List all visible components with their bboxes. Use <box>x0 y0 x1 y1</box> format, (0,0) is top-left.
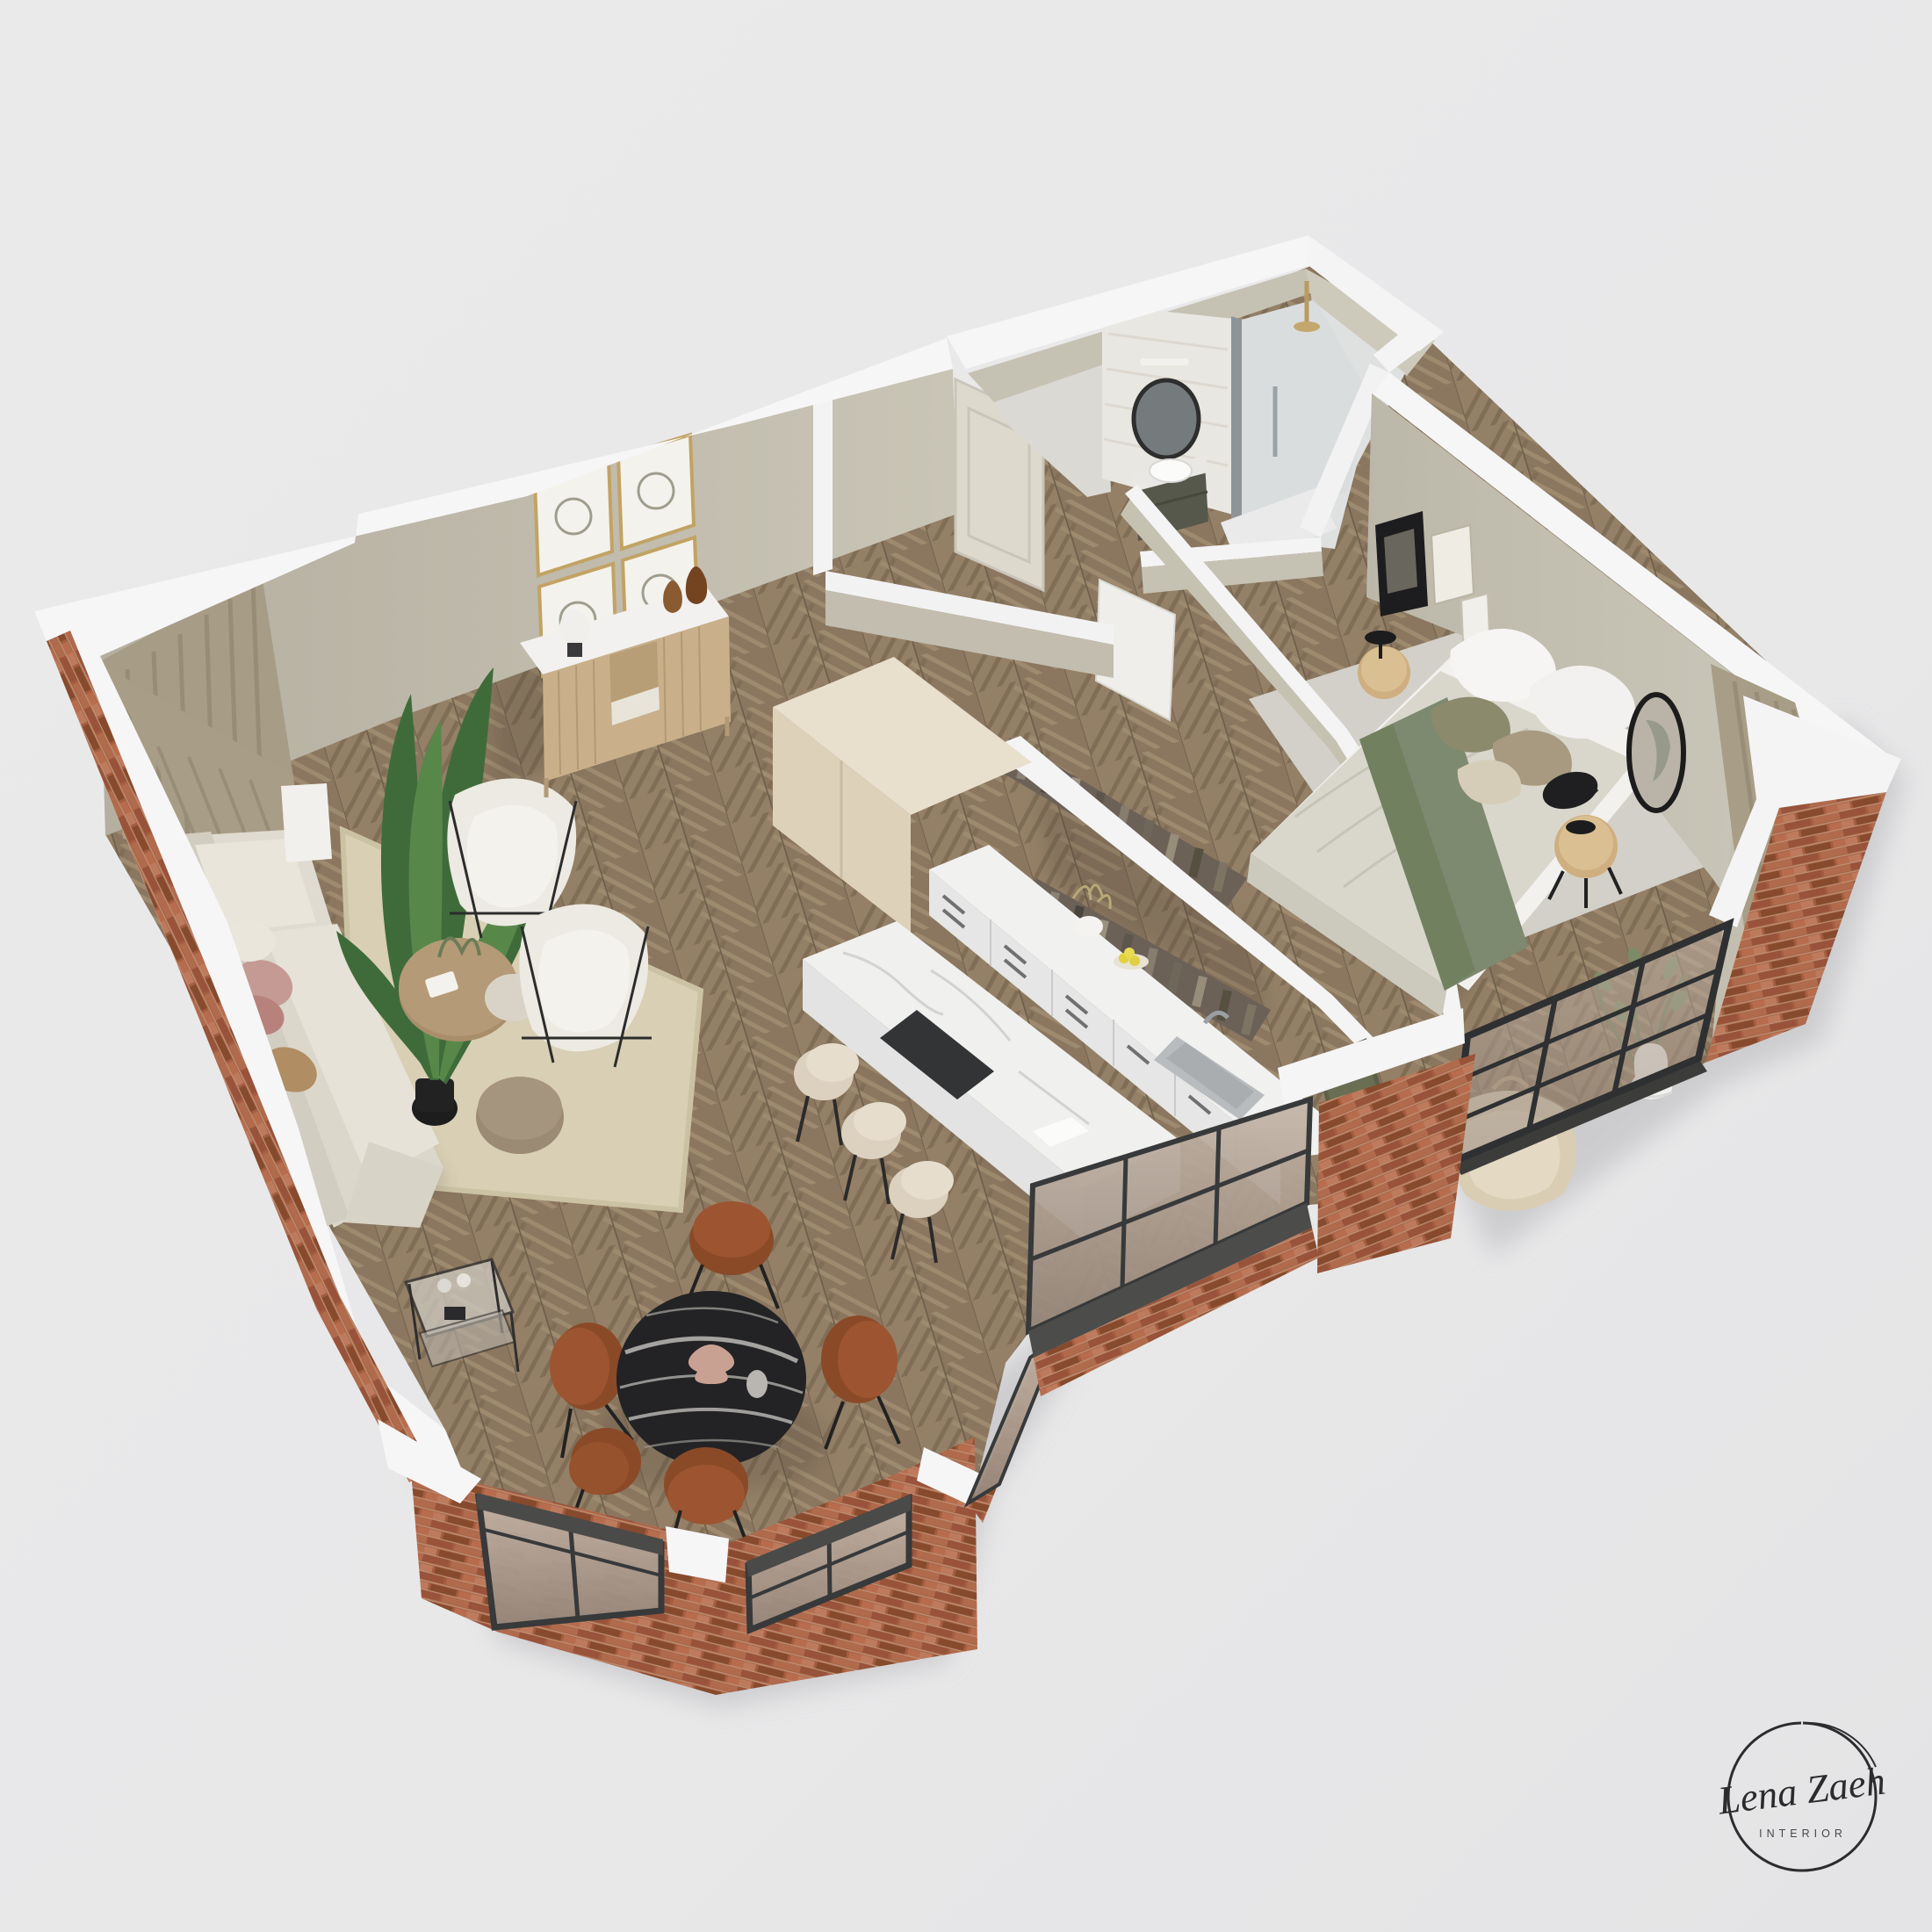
svg-text:INTERIOR: INTERIOR <box>1759 1827 1847 1840</box>
